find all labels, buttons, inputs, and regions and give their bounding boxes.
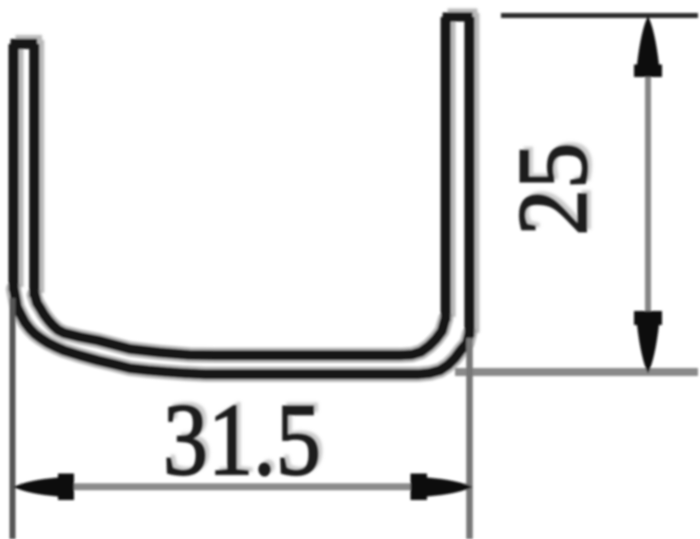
svg-text:31.5: 31.5: [163, 383, 321, 497]
svg-text:25: 25: [497, 143, 608, 236]
